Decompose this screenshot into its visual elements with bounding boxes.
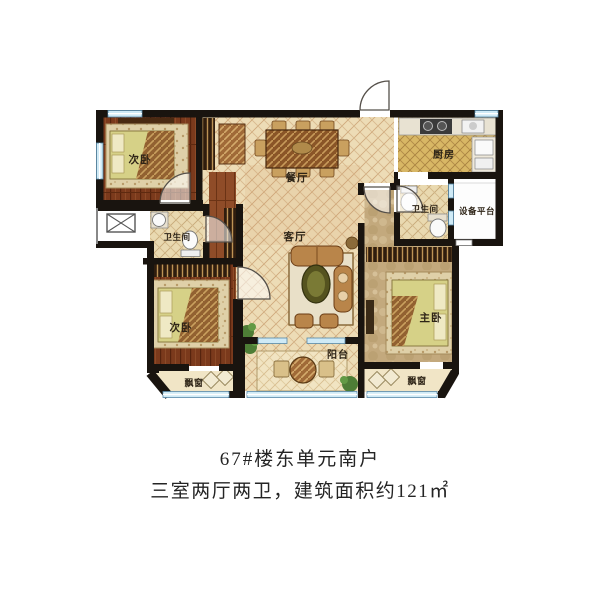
wall [203,204,210,216]
wall [147,204,206,211]
wall [147,364,189,371]
wall [394,239,503,246]
label-equipment-platform: 设备平台 [459,206,495,216]
pillow [160,291,172,313]
pillow [112,134,124,152]
label-bedroom-bottom-left: 次卧 [170,321,193,334]
window [449,211,454,225]
toilet-tank [181,250,200,257]
wash-basin [153,214,166,227]
wall [358,183,364,195]
wall [219,364,233,371]
label-bay-window-right: 飘窗 [407,375,426,386]
wall [394,212,400,239]
annex-open-edge [96,208,98,244]
coffee-table-top [307,271,325,297]
floorplan-page: 次卧 餐厅 客厅 厨房 卫生间 设备平台 卫生间 次卧 主卧 阳台 飘窗 飘窗 … [0,0,600,600]
tv-stand-master [366,300,374,334]
label-living: 客厅 [283,230,307,243]
ottoman [295,314,313,328]
sink-basin [469,122,477,130]
pillow [112,155,124,173]
floorplan-drawing: 次卧 餐厅 客厅 厨房 卫生间 设备平台 卫生间 次卧 主卧 阳台 飘窗 飘窗 [0,0,600,600]
wall [443,362,453,369]
table-centerpiece [292,142,312,154]
wardrobe-master [366,247,452,262]
wall [143,258,243,265]
label-kitchen: 厨房 [433,148,455,161]
balcony-chair [274,361,289,377]
wall [233,258,243,267]
balcony-table [290,357,316,383]
wall [358,223,365,344]
dining-chair [338,140,349,156]
wall [233,340,245,398]
balcony-chair [319,361,334,377]
label-bathroom-right: 卫生间 [411,204,438,214]
wall [428,172,496,179]
plant [340,376,348,384]
window [258,338,287,344]
elevator-annex [107,214,135,232]
wall [196,110,203,207]
wash-basin [430,219,446,237]
label-master-bedroom: 主卧 [420,311,443,324]
wall [394,179,400,186]
wall [496,110,504,246]
sofa-cushion [338,291,348,301]
side-table-lamp [346,237,358,249]
caption-line2: 三室两厅两卫，建筑面积约121㎡ [0,476,600,503]
wall [96,241,154,248]
entry-cabinet [202,118,215,170]
wall [243,337,258,344]
label-balcony: 阳台 [327,348,349,361]
shoe-cabinet [219,124,245,164]
fridge-door [475,140,493,155]
wardrobe-bedroom-bottom-left [152,263,230,277]
wall [438,391,444,398]
label-dining: 餐厅 [285,171,309,184]
door-entrance [360,81,389,110]
wall [236,204,243,258]
window [449,184,454,198]
burner [424,122,433,131]
wall [233,299,243,344]
pillow [434,284,446,310]
label-bedroom-top-left: 次卧 [129,153,152,166]
label-bay-window-left: 飘窗 [184,377,203,388]
wall [358,362,420,369]
burner [438,122,447,131]
ottoman [320,314,338,328]
window [456,240,472,246]
wall [358,344,365,398]
small-appliance [475,158,493,169]
wall [345,337,358,344]
caption-line1: 67#楼东单元南户 [0,444,600,471]
sofa-cushion [338,273,348,283]
plant [248,323,256,331]
wall [452,246,459,374]
dining-chair [255,140,266,156]
label-bathroom-left: 卫生间 [163,232,190,242]
wall [394,172,398,179]
window [307,338,345,344]
